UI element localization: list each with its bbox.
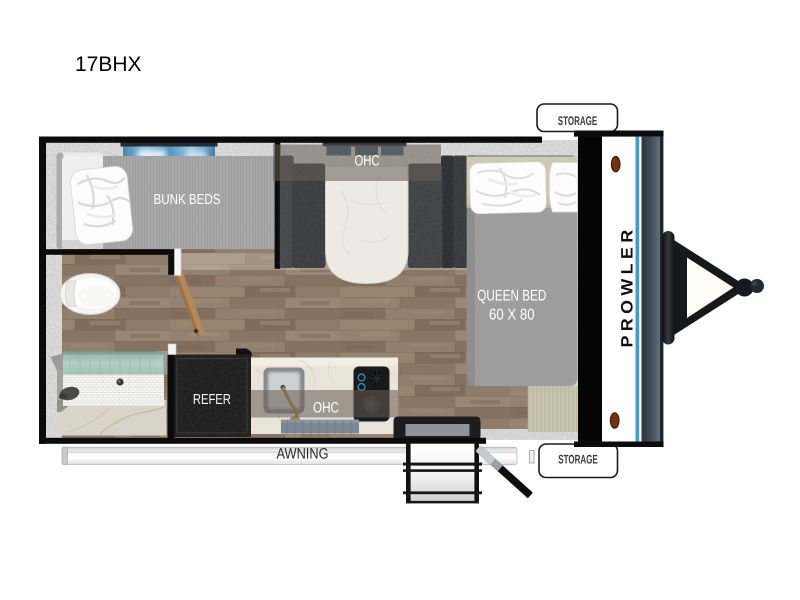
svg-text:PROWLER: PROWLER xyxy=(619,226,637,348)
svg-text:OHC: OHC xyxy=(355,153,380,170)
svg-text:17BHX: 17BHX xyxy=(75,53,142,76)
svg-text:STORAGE: STORAGE xyxy=(558,453,598,467)
svg-text:STORAGE: STORAGE xyxy=(558,114,598,128)
svg-text:60 X 80: 60 X 80 xyxy=(489,307,535,324)
svg-text:AWNING: AWNING xyxy=(277,446,329,463)
svg-text:BUNK BEDS: BUNK BEDS xyxy=(154,192,221,208)
svg-text:QUEEN BED: QUEEN BED xyxy=(477,288,546,305)
svg-text:REFER: REFER xyxy=(193,392,231,408)
svg-text:OHC: OHC xyxy=(313,400,339,417)
